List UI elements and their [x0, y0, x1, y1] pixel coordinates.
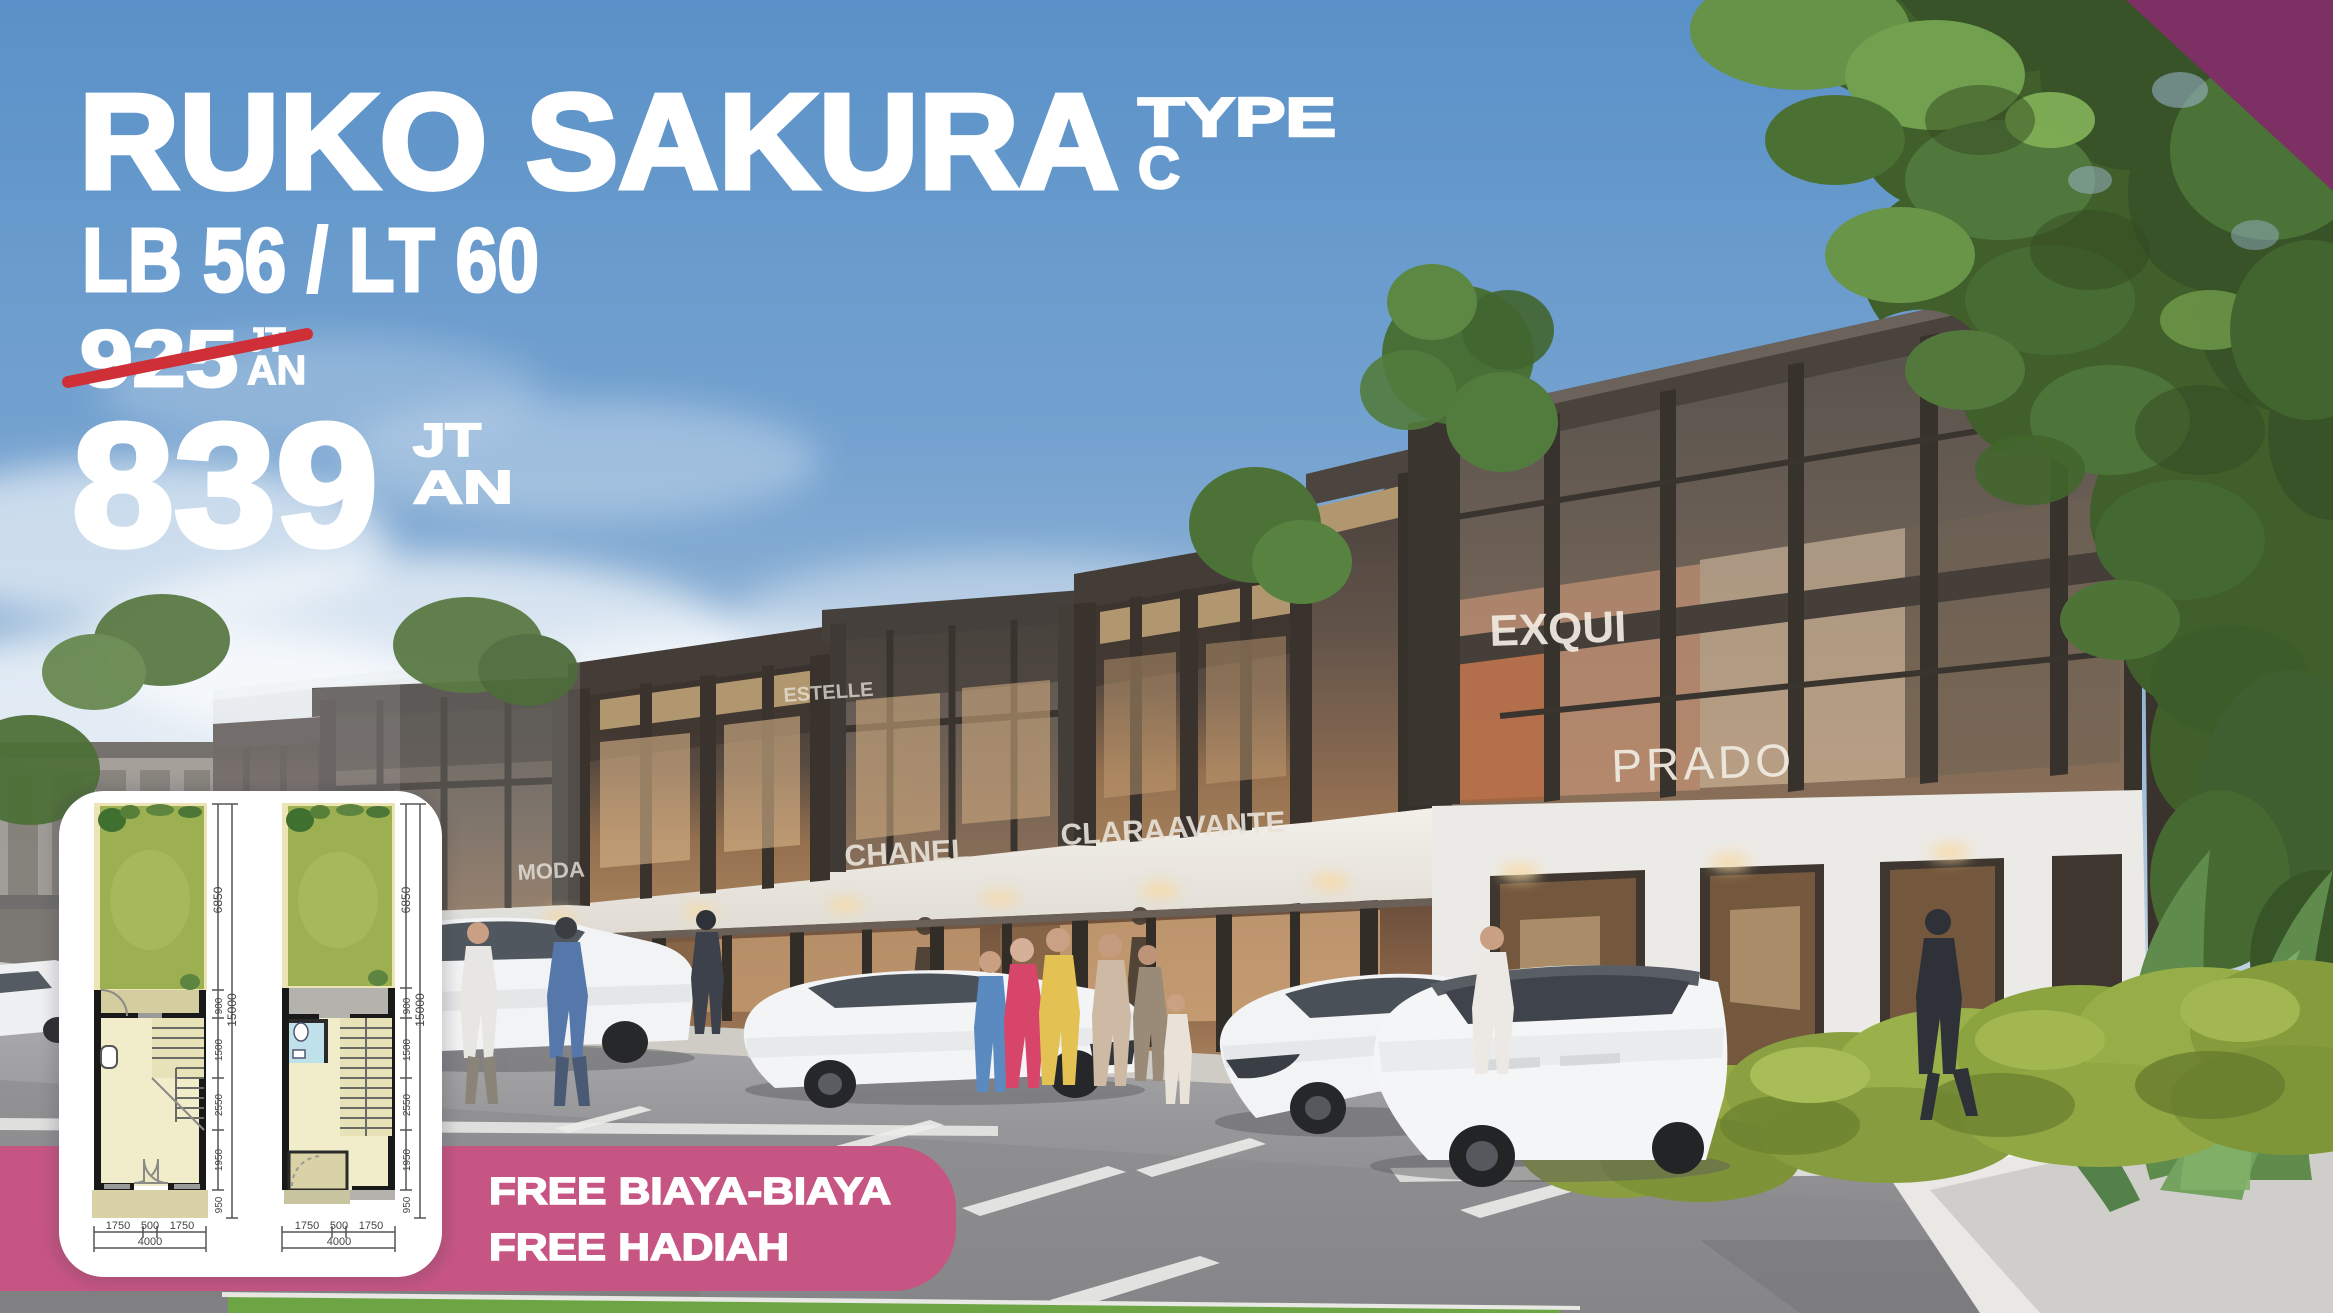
svg-text:FREE HADIAH: FREE HADIAH: [489, 1227, 789, 1269]
svg-text:FREE BIAYA-BIAYA: FREE BIAYA-BIAYA: [489, 1171, 891, 1213]
svg-text:950: 950: [402, 1196, 413, 1213]
svg-text:6850: 6850: [399, 886, 413, 913]
svg-text:15000: 15000: [413, 993, 427, 1027]
svg-text:1500: 1500: [402, 1038, 413, 1061]
svg-text:950: 950: [214, 1196, 225, 1213]
svg-text:1750: 1750: [359, 1220, 383, 1232]
svg-text:1950: 1950: [214, 1148, 225, 1171]
svg-text:900: 900: [402, 997, 413, 1014]
svg-text:839: 839: [72, 387, 378, 582]
svg-text:1750: 1750: [170, 1220, 194, 1232]
svg-text:1950: 1950: [402, 1148, 413, 1171]
svg-text:4000: 4000: [327, 1236, 351, 1248]
svg-text:15000: 15000: [225, 993, 239, 1027]
svg-text:EXQUI: EXQUI: [1489, 602, 1628, 656]
svg-text:6850: 6850: [211, 886, 225, 913]
svg-text:JT: JT: [413, 414, 481, 466]
svg-text:500: 500: [141, 1220, 159, 1232]
svg-text:PRADO: PRADO: [1611, 734, 1796, 792]
svg-text:AVANTE: AVANTE: [1166, 806, 1286, 845]
svg-text:4000: 4000: [138, 1236, 162, 1248]
svg-text:AN: AN: [413, 461, 513, 513]
svg-text:RUKO SAKURA: RUKO SAKURA: [79, 66, 1119, 217]
svg-text:2550: 2550: [214, 1093, 225, 1116]
svg-text:500: 500: [330, 1220, 348, 1232]
svg-text:2550: 2550: [402, 1093, 413, 1116]
svg-text:C: C: [1138, 136, 1180, 201]
svg-text:1750: 1750: [106, 1220, 130, 1232]
svg-text:CHANEL: CHANEL: [844, 834, 971, 873]
svg-text:CLARA: CLARA: [1060, 814, 1167, 852]
svg-text:1750: 1750: [295, 1220, 319, 1232]
svg-text:900: 900: [214, 997, 225, 1014]
svg-text:LB 56 / LT 60: LB 56 / LT 60: [82, 211, 539, 311]
svg-text:1500: 1500: [214, 1038, 225, 1061]
